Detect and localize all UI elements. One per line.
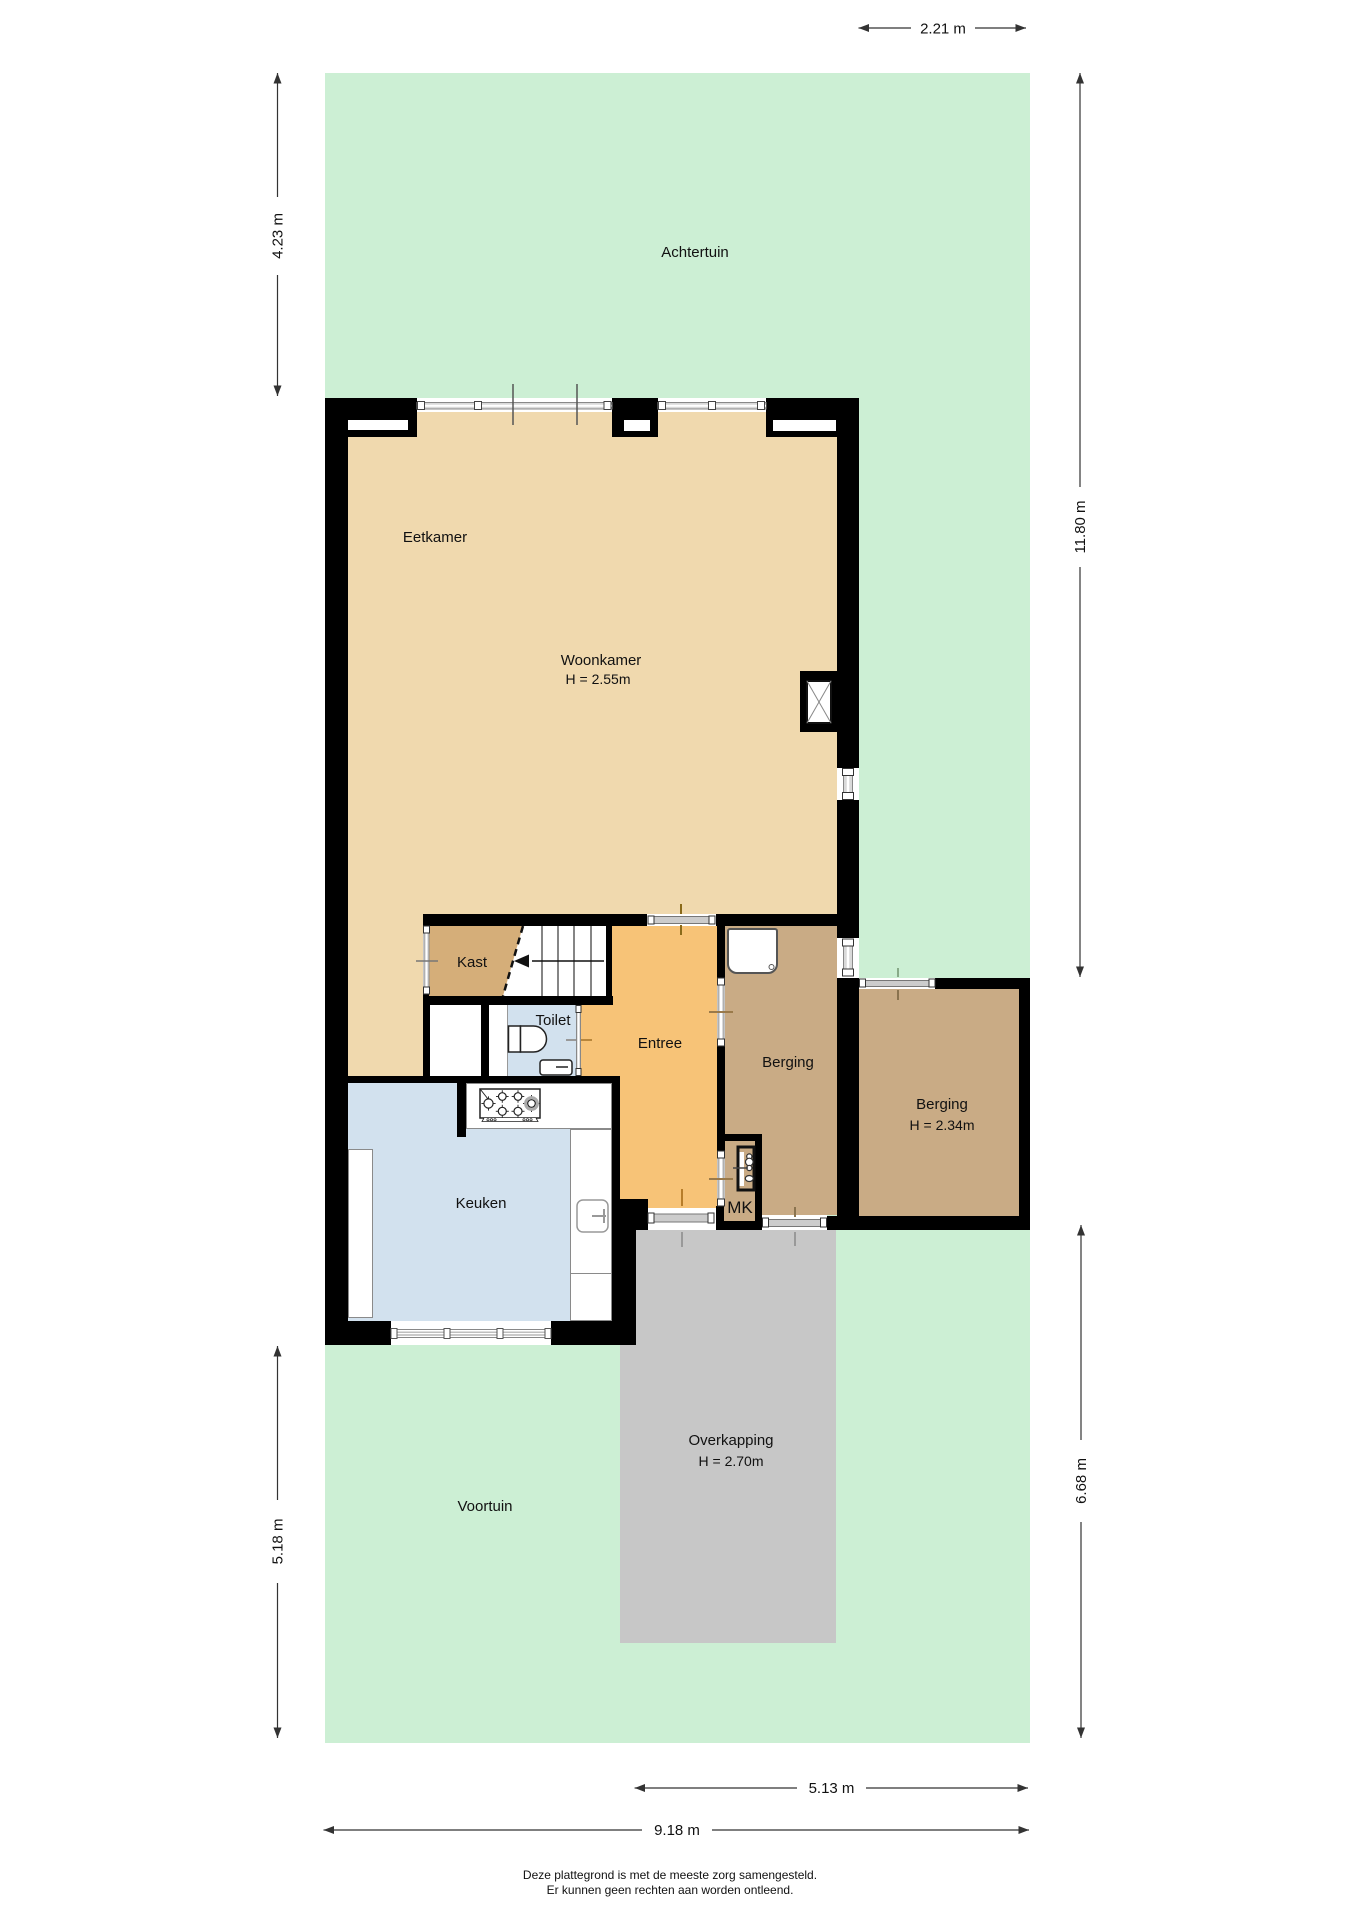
svg-text:5.18 m: 5.18 m xyxy=(270,1519,287,1565)
svg-text:Berging: Berging xyxy=(762,1054,814,1071)
svg-text:Berging: Berging xyxy=(916,1096,968,1113)
svg-text:Woonkamer: Woonkamer xyxy=(561,652,642,669)
svg-text:Overkapping: Overkapping xyxy=(688,1432,773,1449)
svg-text:Deze plattegrond is met de mee: Deze plattegrond is met de meeste zorg s… xyxy=(523,1868,817,1882)
svg-text:H = 2.70m: H = 2.70m xyxy=(699,1453,764,1469)
svg-text:Toilet: Toilet xyxy=(535,1012,571,1029)
svg-text:Er kunnen geen rechten aan wor: Er kunnen geen rechten aan worden ontlee… xyxy=(547,1883,794,1897)
svg-text:H = 2.34m: H = 2.34m xyxy=(910,1117,975,1133)
svg-text:Achtertuin: Achtertuin xyxy=(661,244,729,261)
svg-text:11.80 m: 11.80 m xyxy=(1072,500,1089,553)
svg-text:Kast: Kast xyxy=(457,954,488,971)
svg-text:Eetkamer: Eetkamer xyxy=(403,529,467,546)
svg-text:Voortuin: Voortuin xyxy=(457,1498,512,1515)
svg-text:2.21 m: 2.21 m xyxy=(920,21,966,38)
svg-text:6.68 m: 6.68 m xyxy=(1073,1458,1090,1504)
svg-text:Keuken: Keuken xyxy=(456,1195,507,1212)
svg-text:H = 2.55m: H = 2.55m xyxy=(566,671,631,687)
svg-text:Entree: Entree xyxy=(638,1035,682,1052)
svg-text:5.13 m: 5.13 m xyxy=(809,1780,855,1797)
svg-text:9.18 m: 9.18 m xyxy=(654,1822,700,1839)
svg-text:4.23 m: 4.23 m xyxy=(270,213,287,259)
svg-text:MK: MK xyxy=(727,1198,753,1217)
